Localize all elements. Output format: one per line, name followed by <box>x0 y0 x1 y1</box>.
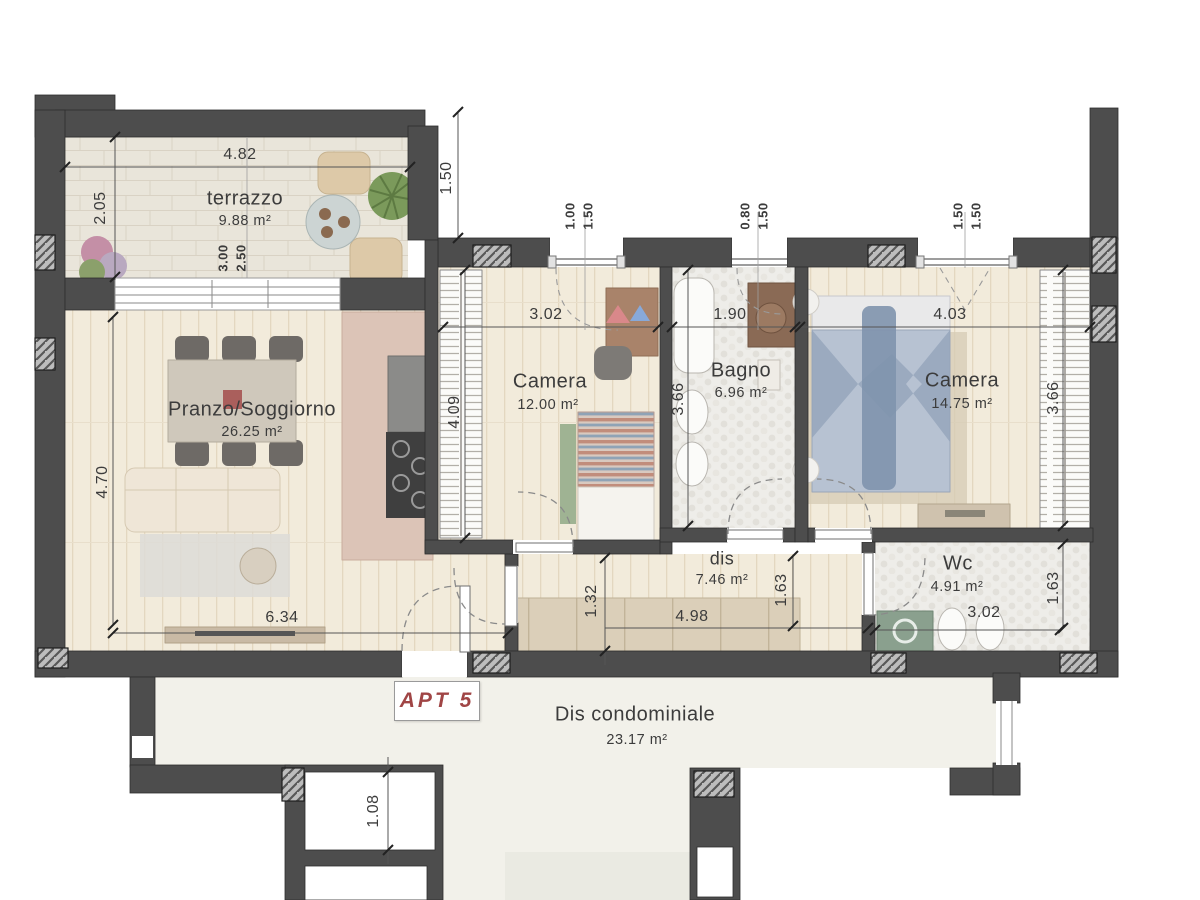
camera1-door-leaf <box>516 543 573 552</box>
dim-bagno-width: 1.90 <box>713 306 746 324</box>
dining-chair <box>222 336 256 362</box>
dim-dis-width: 4.98 <box>675 608 708 626</box>
terrace-table <box>306 195 360 249</box>
floor-plan-drawing <box>0 0 1200 900</box>
hall-window-right <box>996 701 1017 765</box>
bidet <box>676 442 708 486</box>
dis-area: 7.46 m² <box>696 572 749 588</box>
dim-dis-depth: 1.32 <box>583 584 601 617</box>
living-name: Pranzo/Soggiorno <box>168 399 336 422</box>
dim-camera1-width: 3.02 <box>529 306 562 324</box>
dim-side-setback: 1.50 <box>438 161 456 194</box>
floor-plan: terrazzo 9.88 m² 4.82 2.05 1.50 3.00 2.5… <box>0 0 1200 900</box>
apartment-label: APT 5 <box>394 681 480 721</box>
dim-win3-h: 1.50 <box>969 202 984 229</box>
dim-wc-east: 1.63 <box>1045 571 1063 604</box>
bathtub <box>674 278 714 373</box>
condo-hall-landing <box>505 852 690 900</box>
dim-win2-w: 0.80 <box>738 202 753 229</box>
dining-chair <box>269 336 303 362</box>
dim-camera2-width: 4.03 <box>933 306 966 324</box>
dim-terrace-door-h: 2.50 <box>234 244 249 271</box>
entrance-door-leaf <box>460 586 470 652</box>
dim-win2-h: 1.50 <box>756 202 771 229</box>
camera2-name: Camera <box>925 370 999 393</box>
wc-area: 4.91 m² <box>931 579 984 595</box>
bagno-name: Bagno <box>711 360 771 383</box>
dim-living-width: 6.34 <box>265 609 298 627</box>
terrace-chair-2 <box>350 238 402 284</box>
camera2-throw <box>862 306 896 490</box>
camera1-area: 12.00 m² <box>517 397 578 413</box>
washing-machine <box>877 611 933 651</box>
dining-chair <box>175 336 209 362</box>
camera2-area: 14.75 m² <box>931 396 992 412</box>
elevator-shaft <box>697 847 733 897</box>
bagno-door-leaf <box>727 530 783 539</box>
dis-cabinets <box>510 598 800 651</box>
terrazzo-area: 9.88 m² <box>219 213 272 229</box>
stair-shaft-2 <box>305 866 427 900</box>
dim-win1-w: 1.00 <box>563 202 578 229</box>
hall-window-left <box>132 736 153 758</box>
dining-chair <box>175 440 209 466</box>
dim-dis-east: 1.63 <box>773 573 791 606</box>
dim-win1-h: 1.50 <box>581 202 596 229</box>
dim-terrazzo-width: 4.82 <box>223 146 256 164</box>
camera2-door-leaf <box>815 530 872 539</box>
terrazzo-name: terrazzo <box>207 188 283 211</box>
dim-living-depth: 4.70 <box>94 465 112 498</box>
terrace-chair-1 <box>318 152 370 194</box>
dim-stair-width: 1.08 <box>365 794 383 827</box>
wc-toilet <box>938 608 966 650</box>
washbasin <box>756 303 786 333</box>
dining-chair <box>222 440 256 466</box>
condo-hall-area: 23.17 m² <box>606 732 667 748</box>
bagno-area: 6.96 m² <box>715 385 768 401</box>
camera1-chair <box>594 346 632 380</box>
entrance-threshold <box>402 651 467 677</box>
dis-door-leaf <box>505 566 517 626</box>
dis-name: dis <box>710 549 735 570</box>
dim-camera2-depth: 3.66 <box>1045 381 1063 414</box>
dim-terrace-door-w: 3.00 <box>216 244 231 271</box>
camera1-bed <box>578 412 654 487</box>
dim-wc-width: 3.02 <box>967 604 1000 622</box>
wc-door-leaf <box>864 553 873 615</box>
dim-bagno-depth: 3.66 <box>670 382 688 415</box>
camera1-name: Camera <box>513 371 587 394</box>
apartment-label-text: APT 5 <box>400 689 475 713</box>
dim-terrazzo-depth: 2.05 <box>92 191 110 224</box>
condo-hall-name: Dis condominiale <box>555 704 715 727</box>
wc-name: Wc <box>943 553 973 576</box>
dim-camera1-depth: 4.09 <box>446 395 464 428</box>
dim-win3-w: 1.50 <box>951 202 966 229</box>
sofa <box>125 468 280 532</box>
terrace-french-window <box>115 278 340 310</box>
coffee-table <box>240 548 276 584</box>
dining-chair <box>269 440 303 466</box>
living-area: 26.25 m² <box>221 424 282 440</box>
